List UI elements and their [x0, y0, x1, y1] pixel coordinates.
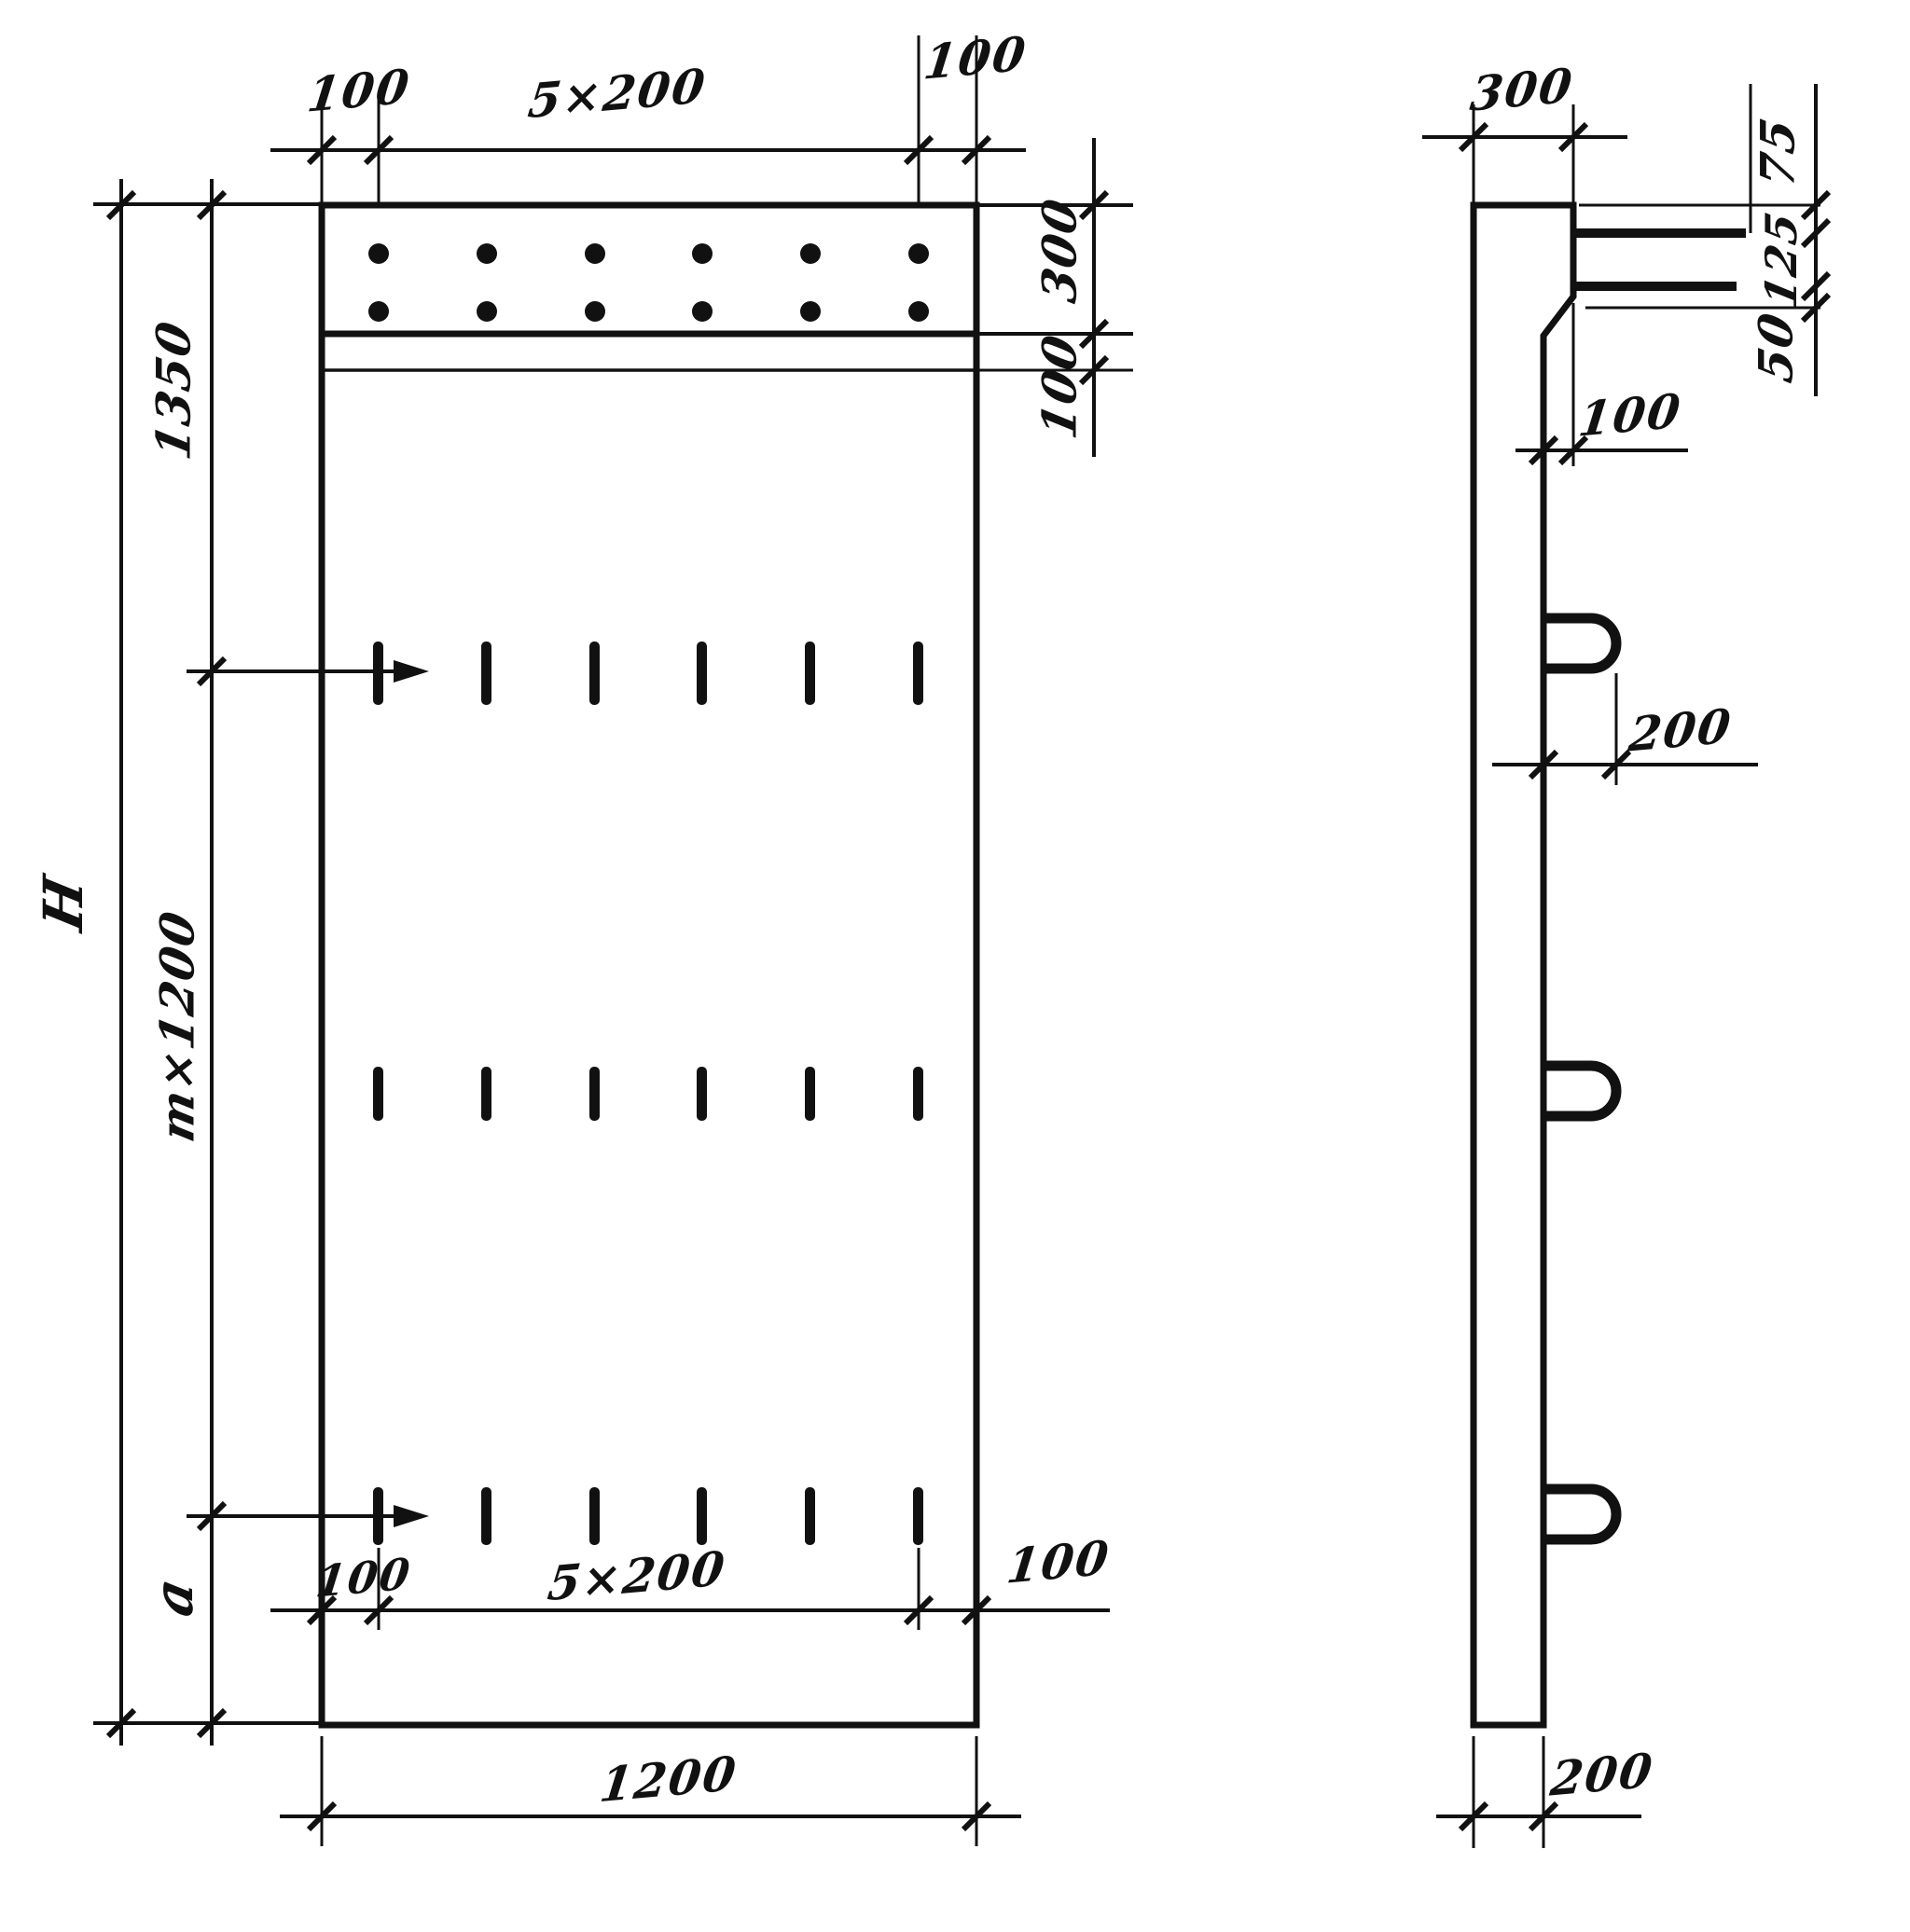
- drawing-sheet: 100 5×200 100 300 100 H 1350 m×1200 a 10…: [0, 0, 1910, 1932]
- anchor-dot: [692, 301, 713, 322]
- anchor-dot: [477, 243, 497, 264]
- slot-mark: [697, 1067, 707, 1121]
- slot-mark: [805, 642, 815, 705]
- dim-label-loop-projection: 200: [1626, 697, 1735, 762]
- dim-label-side-top-thickness: 300: [1467, 57, 1576, 121]
- slot-mark: [589, 1487, 600, 1545]
- dim-label-step-depth: 100: [1575, 382, 1684, 447]
- slot-mark: [589, 1067, 600, 1121]
- slot-marks: [373, 642, 923, 1545]
- dim-label-top-right-margin: 100: [920, 25, 1030, 90]
- profile-outline: [1474, 205, 1573, 1725]
- anchor-dot: [800, 301, 821, 322]
- anchor-dots: [368, 243, 929, 322]
- dim-label-bar-top-offset: 75: [1751, 112, 1806, 192]
- anchor-dot: [477, 301, 497, 322]
- slot-mark: [481, 642, 491, 705]
- slot-mark: [697, 642, 707, 705]
- anchor-dot: [368, 301, 389, 322]
- dim-label-top-zone: 1350: [146, 315, 201, 464]
- level-arrow-icon: [394, 660, 429, 683]
- slot-mark: [913, 1487, 923, 1545]
- slot-mark: [481, 1067, 491, 1121]
- slot-mark: [913, 642, 923, 705]
- slot-mark: [373, 1067, 383, 1121]
- dim-label-band-height: 300: [1032, 193, 1087, 308]
- dim-label-band-gap: 100: [1032, 329, 1087, 444]
- slot-mark: [697, 1487, 707, 1545]
- slot-mark: [805, 1067, 815, 1121]
- dim-label-middle-zone: m×1200: [150, 905, 205, 1147]
- anchor-dot: [692, 243, 713, 264]
- dim-label-bar-bottom-offset: 50: [1749, 307, 1804, 387]
- anchor-dot: [908, 301, 929, 322]
- anchor-dot: [585, 301, 605, 322]
- dim-label-bottom-right-margin: 100: [1003, 1529, 1113, 1594]
- slot-mark: [481, 1487, 491, 1545]
- anchor-dot: [800, 243, 821, 264]
- drawing-linework: [0, 0, 1910, 1932]
- slot-mark: [913, 1067, 923, 1121]
- anchor-dot: [908, 243, 929, 264]
- panel-outline: [322, 205, 976, 1725]
- anchor-dot: [368, 243, 389, 264]
- slot-mark: [805, 1487, 815, 1545]
- slot-mark: [589, 642, 600, 705]
- level-arrow-icon: [394, 1505, 429, 1527]
- lifting-loop: [1543, 1066, 1616, 1116]
- lifting-loop: [1543, 1489, 1616, 1539]
- dim-label-bottom-left-margin: 100: [313, 1548, 414, 1608]
- dim-label-bottom-thickness: 200: [1547, 1742, 1656, 1806]
- dim-label-top-left-margin: 100: [304, 58, 413, 122]
- dim-label-bar-spacing: 125: [1756, 206, 1806, 312]
- anchor-dot: [585, 243, 605, 264]
- lifting-loop: [1543, 618, 1616, 669]
